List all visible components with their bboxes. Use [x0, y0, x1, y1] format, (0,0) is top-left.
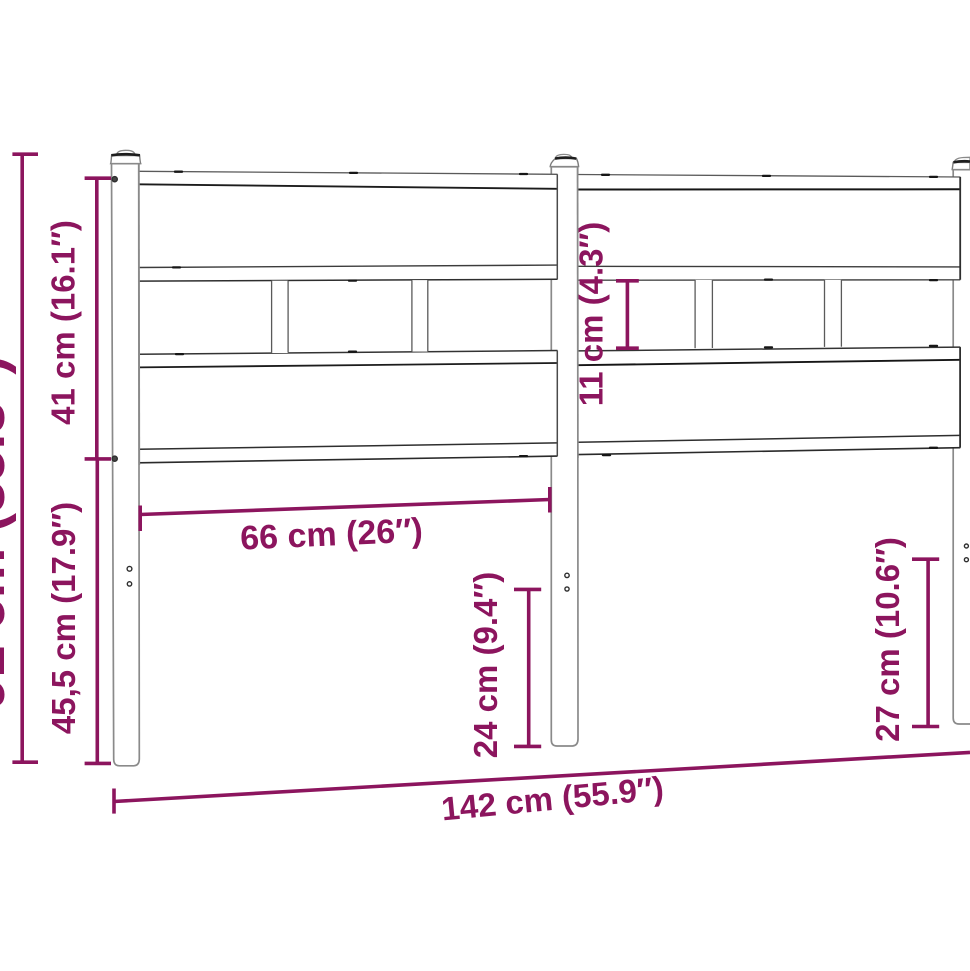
svg-text:11 cm (4.3″): 11 cm (4.3″): [573, 222, 610, 407]
svg-text:41 cm (16.1″): 41 cm (16.1″): [45, 220, 82, 425]
svg-text:27 cm (10.6″): 27 cm (10.6″): [869, 537, 906, 742]
svg-text:45,5 cm (17.9″): 45,5 cm (17.9″): [45, 502, 82, 734]
svg-text:91 cm (35.8″): 91 cm (35.8″): [0, 356, 17, 710]
svg-text:24 cm (9.4″): 24 cm (9.4″): [467, 572, 504, 758]
